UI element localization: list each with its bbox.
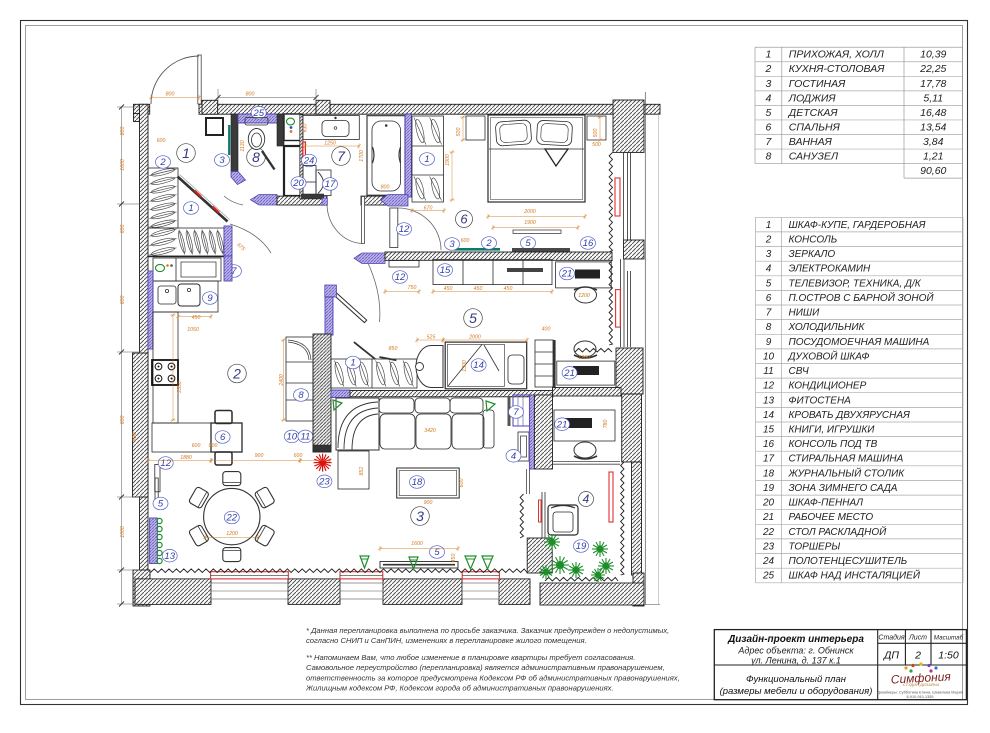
svg-text:1880: 1880 bbox=[180, 455, 192, 461]
svg-text:КОНСОЛЬ ПОД ТВ: КОНСОЛЬ ПОД ТВ bbox=[789, 439, 878, 450]
svg-text:ПРИХОЖАЯ, ХОЛЛ: ПРИХОЖАЯ, ХОЛЛ bbox=[789, 49, 885, 61]
svg-text:6: 6 bbox=[460, 211, 468, 226]
svg-text:450: 450 bbox=[444, 286, 453, 292]
svg-text:15: 15 bbox=[763, 425, 775, 436]
svg-text:800: 800 bbox=[166, 92, 175, 98]
svg-text:14: 14 bbox=[473, 360, 484, 371]
svg-text:3: 3 bbox=[219, 155, 225, 166]
svg-text:4: 4 bbox=[765, 92, 771, 104]
svg-text:800: 800 bbox=[120, 127, 126, 136]
svg-text:11: 11 bbox=[300, 432, 310, 443]
svg-text:25: 25 bbox=[762, 571, 775, 582]
svg-text:7: 7 bbox=[766, 308, 772, 319]
svg-text:1: 1 bbox=[765, 49, 771, 61]
svg-text:18: 18 bbox=[412, 477, 423, 488]
svg-text:600: 600 bbox=[157, 138, 166, 144]
svg-text:500: 500 bbox=[456, 128, 462, 137]
svg-text:ЛОДЖИЯ: ЛОДЖИЯ bbox=[788, 92, 837, 104]
svg-text:900: 900 bbox=[424, 500, 433, 506]
svg-text:10: 10 bbox=[287, 432, 298, 443]
svg-text:ПОСУДОМОЕЧНАЯ МАШИНА: ПОСУДОМОЕЧНАЯ МАШИНА bbox=[789, 337, 930, 348]
svg-text:600: 600 bbox=[132, 433, 138, 442]
svg-text:1:50: 1:50 bbox=[938, 650, 959, 662]
svg-text:САНУЗЕЛ: САНУЗЕЛ bbox=[789, 151, 839, 163]
svg-text:7: 7 bbox=[513, 407, 519, 418]
svg-text:5: 5 bbox=[766, 278, 772, 289]
svg-text:1900: 1900 bbox=[524, 220, 536, 226]
svg-text:5,11: 5,11 bbox=[923, 92, 943, 104]
svg-text:16: 16 bbox=[583, 238, 594, 249]
svg-text:800: 800 bbox=[381, 185, 390, 191]
svg-text:19: 19 bbox=[763, 483, 775, 494]
svg-text:10: 10 bbox=[763, 351, 775, 362]
svg-text:7: 7 bbox=[337, 148, 346, 164]
svg-text:Жилищным кодексом РФ, Кодексом: Жилищным кодексом РФ, Кодексом города об… bbox=[305, 684, 614, 693]
svg-text:852: 852 bbox=[359, 467, 365, 476]
svg-text:20: 20 bbox=[762, 498, 775, 509]
svg-text:8: 8 bbox=[766, 322, 772, 333]
svg-text:ответственность за которое пре: ответственность за которое предусмотрена… bbox=[306, 673, 680, 682]
svg-text:2: 2 bbox=[765, 234, 772, 245]
svg-text:5: 5 bbox=[434, 547, 440, 558]
svg-text:1600: 1600 bbox=[411, 541, 423, 547]
svg-text:6: 6 bbox=[765, 121, 771, 133]
svg-text:600: 600 bbox=[294, 453, 303, 459]
svg-text:750: 750 bbox=[408, 285, 417, 291]
svg-text:500: 500 bbox=[593, 129, 599, 138]
svg-text:Функциональный план: Функциональный план bbox=[746, 674, 847, 685]
svg-text:4: 4 bbox=[766, 264, 772, 275]
svg-text:1200: 1200 bbox=[226, 531, 238, 537]
svg-text:1050: 1050 bbox=[187, 327, 199, 333]
svg-text:15: 15 bbox=[440, 265, 451, 276]
svg-text:18: 18 bbox=[763, 468, 775, 479]
svg-text:23: 23 bbox=[318, 477, 330, 488]
svg-text:9: 9 bbox=[766, 337, 772, 348]
svg-text:ДЕТСКАЯ: ДЕТСКАЯ bbox=[788, 107, 839, 119]
svg-text:8: 8 bbox=[252, 149, 260, 165]
svg-text:6: 6 bbox=[766, 293, 772, 304]
svg-text:6: 6 bbox=[220, 432, 226, 443]
svg-text:20: 20 bbox=[292, 178, 304, 189]
svg-text:8-910-910-1355: 8-910-910-1355 bbox=[906, 695, 933, 699]
svg-text:1: 1 bbox=[766, 220, 772, 231]
svg-text:2: 2 bbox=[914, 650, 921, 662]
svg-text:17: 17 bbox=[763, 454, 775, 465]
svg-text:Масштаб: Масштаб bbox=[934, 634, 964, 642]
svg-text:ДУХОВОЙ ШКАФ: ДУХОВОЙ ШКАФ bbox=[788, 349, 870, 362]
svg-text:450: 450 bbox=[451, 554, 457, 563]
svg-text:ЭЛЕКТРОКАМИН: ЭЛЕКТРОКАМИН bbox=[789, 264, 872, 275]
svg-text:12: 12 bbox=[160, 458, 171, 469]
svg-text:21: 21 bbox=[563, 368, 575, 379]
svg-text:1300: 1300 bbox=[462, 360, 468, 372]
svg-text:630: 630 bbox=[303, 124, 309, 133]
svg-text:22: 22 bbox=[762, 527, 775, 538]
svg-text:5: 5 bbox=[469, 310, 477, 326]
svg-text:2350: 2350 bbox=[177, 381, 183, 394]
svg-text:1700: 1700 bbox=[359, 150, 365, 162]
svg-text:4: 4 bbox=[583, 492, 590, 506]
svg-text:1: 1 bbox=[182, 145, 190, 161]
svg-text:ДП: ДП bbox=[883, 650, 899, 662]
svg-text:2: 2 bbox=[232, 365, 241, 381]
svg-text:12: 12 bbox=[763, 381, 775, 392]
svg-text:согласно СНИП и СанПИН, измене: согласно СНИП и СанПИН, изменениях в пер… bbox=[306, 636, 587, 645]
svg-text:РАБОЧЕЕ МЕСТО: РАБОЧЕЕ МЕСТО bbox=[789, 512, 874, 523]
svg-text:ВАННАЯ: ВАННАЯ bbox=[789, 136, 833, 148]
svg-text:13: 13 bbox=[164, 551, 175, 562]
svg-text:2000: 2000 bbox=[468, 335, 481, 341]
svg-text:1: 1 bbox=[350, 358, 355, 369]
svg-text:Дизайнеры: Субботина Елена, Ше: Дизайнеры: Субботина Елена, Шевелева Мар… bbox=[877, 691, 963, 695]
svg-text:ЗЕРКАЛО: ЗЕРКАЛО bbox=[789, 249, 836, 260]
svg-text:1250: 1250 bbox=[324, 141, 336, 147]
svg-text:ШКАФ-КУПЕ, ГАРДЕРОБНАЯ: ШКАФ-КУПЕ, ГАРДЕРОБНАЯ bbox=[789, 220, 926, 231]
svg-text:2: 2 bbox=[159, 157, 166, 168]
svg-text:23: 23 bbox=[762, 542, 775, 553]
svg-text:ЗОНА ЗИМНЕГО САДА: ЗОНА ЗИМНЕГО САДА bbox=[789, 483, 898, 494]
svg-text:2000: 2000 bbox=[523, 209, 536, 215]
svg-text:3: 3 bbox=[449, 239, 455, 250]
svg-text:* Данная перепланировка выполн: * Данная перепланировка выполнена по про… bbox=[306, 626, 669, 635]
svg-text:** Напоминаем Вам, что любое и: ** Напоминаем Вам, что любое изменение в… bbox=[306, 653, 635, 662]
svg-text:ЖУРНАЛЬНЫЙ СТОЛИК: ЖУРНАЛЬНЫЙ СТОЛИК bbox=[788, 466, 906, 479]
svg-text:3: 3 bbox=[765, 78, 771, 90]
svg-text:Дизайн-проект интерьера: Дизайн-проект интерьера bbox=[727, 634, 864, 645]
svg-text:1200: 1200 bbox=[578, 293, 590, 299]
svg-text:450: 450 bbox=[192, 315, 201, 321]
svg-text:1200: 1200 bbox=[578, 355, 590, 361]
svg-text:ТОРШЕРЫ: ТОРШЕРЫ bbox=[789, 542, 841, 553]
svg-text:1600: 1600 bbox=[120, 159, 126, 171]
svg-text:СТУДИЯ ДИЗАЙНА: СТУДИЯ ДИЗАЙНА bbox=[903, 682, 940, 687]
svg-text:22: 22 bbox=[226, 513, 238, 524]
svg-text:16,48: 16,48 bbox=[920, 107, 946, 119]
svg-text:21: 21 bbox=[556, 419, 568, 430]
svg-text:12: 12 bbox=[395, 272, 406, 283]
svg-text:ШКАФ-ПЕННАЛ: ШКАФ-ПЕННАЛ bbox=[789, 498, 864, 509]
svg-text:22,25: 22,25 bbox=[919, 63, 946, 75]
svg-text:3: 3 bbox=[766, 249, 772, 260]
svg-text:КРОВАТЬ ДВУХЯРУСНАЯ: КРОВАТЬ ДВУХЯРУСНАЯ bbox=[789, 410, 910, 421]
svg-text:450: 450 bbox=[474, 286, 483, 292]
svg-text:ХОЛОДИЛЬНИК: ХОЛОДИЛЬНИК bbox=[788, 322, 866, 333]
svg-text:3,84: 3,84 bbox=[923, 136, 944, 148]
svg-text:1130: 1130 bbox=[240, 140, 246, 151]
svg-text:Стадия: Стадия bbox=[878, 634, 904, 642]
svg-text:13,54: 13,54 bbox=[920, 121, 946, 133]
svg-text:КНИГИ, ИГРУШКИ: КНИГИ, ИГРУШКИ bbox=[789, 425, 876, 436]
svg-text:800: 800 bbox=[246, 92, 255, 98]
svg-text:900: 900 bbox=[255, 453, 264, 459]
svg-text:СВЧ: СВЧ bbox=[789, 366, 810, 377]
svg-text:12: 12 bbox=[399, 224, 410, 235]
svg-text:780: 780 bbox=[603, 420, 609, 429]
svg-text:5: 5 bbox=[158, 499, 164, 510]
svg-text:9: 9 bbox=[207, 293, 213, 304]
svg-text:НИШИ: НИШИ bbox=[789, 308, 821, 319]
svg-text:14: 14 bbox=[763, 410, 775, 421]
svg-text:КОНСОЛЬ: КОНСОЛЬ bbox=[789, 234, 838, 245]
svg-text:21: 21 bbox=[762, 512, 774, 523]
svg-text:2400: 2400 bbox=[279, 374, 285, 387]
svg-text:8: 8 bbox=[298, 390, 304, 401]
svg-text:17: 17 bbox=[325, 179, 336, 190]
svg-text:Самовольное переустройство (пе: Самовольное переустройство (перепланиров… bbox=[306, 663, 665, 672]
svg-text:Лист: Лист bbox=[908, 635, 927, 642]
svg-text:1900: 1900 bbox=[445, 154, 451, 166]
svg-text:2: 2 bbox=[485, 238, 492, 249]
svg-text:21: 21 bbox=[561, 269, 573, 280]
svg-text:1000: 1000 bbox=[120, 526, 126, 538]
svg-text:8: 8 bbox=[765, 151, 771, 163]
svg-text:КОНДИЦИОНЕР: КОНДИЦИОНЕР bbox=[789, 381, 867, 392]
svg-text:5: 5 bbox=[765, 107, 771, 119]
svg-text:90,60: 90,60 bbox=[920, 165, 946, 177]
svg-text:П.ОСТРОВ С БАРНОЙ ЗОНОЙ: П.ОСТРОВ С БАРНОЙ ЗОНОЙ bbox=[789, 291, 935, 304]
svg-text:СПАЛЬНЯ: СПАЛЬНЯ bbox=[789, 121, 841, 133]
svg-text:(размеры мебели и оборудования: (размеры мебели и оборудования) bbox=[720, 686, 873, 697]
svg-text:17,78: 17,78 bbox=[920, 78, 946, 90]
svg-text:СТОЛ РАСКЛАДНОЙ: СТОЛ РАСКЛАДНОЙ bbox=[789, 525, 888, 538]
svg-text:800: 800 bbox=[209, 443, 218, 449]
svg-text:24: 24 bbox=[303, 156, 315, 167]
svg-text:СТИРАЛЬНАЯ МАШИНА: СТИРАЛЬНАЯ МАШИНА bbox=[789, 454, 904, 465]
svg-text:13: 13 bbox=[763, 395, 775, 406]
svg-text:ТЕЛЕВИЗОР, ТЕХНИКА, Д/К: ТЕЛЕВИЗОР, ТЕХНИКА, Д/К bbox=[789, 278, 922, 289]
svg-text:1,21: 1,21 bbox=[923, 151, 943, 163]
svg-text:600: 600 bbox=[120, 225, 126, 234]
svg-text:3420: 3420 bbox=[424, 428, 436, 434]
svg-text:2: 2 bbox=[764, 63, 771, 75]
svg-text:600: 600 bbox=[192, 443, 201, 449]
svg-text:850: 850 bbox=[389, 346, 398, 352]
svg-text:600: 600 bbox=[120, 416, 126, 425]
svg-text:Адрес объекта: г. Обнинск: Адрес объекта: г. Обнинск bbox=[737, 646, 854, 656]
svg-text:400: 400 bbox=[542, 327, 551, 333]
svg-text:11: 11 bbox=[763, 366, 773, 377]
svg-text:1: 1 bbox=[424, 154, 429, 165]
svg-text:ШКАФ НАД ИНСТАЛЯЦИЕЙ: ШКАФ НАД ИНСТАЛЯЦИЕЙ bbox=[789, 569, 921, 582]
svg-text:525: 525 bbox=[427, 335, 436, 341]
svg-text:19: 19 bbox=[576, 541, 587, 552]
svg-text:16: 16 bbox=[763, 439, 775, 450]
svg-text:600: 600 bbox=[120, 296, 126, 305]
svg-text:450: 450 bbox=[504, 286, 513, 292]
svg-text:5: 5 bbox=[525, 238, 531, 249]
svg-text:600: 600 bbox=[459, 479, 465, 488]
svg-text:ФИТОСТЕНА: ФИТОСТЕНА bbox=[789, 395, 852, 406]
svg-text:ГОСТИНАЯ: ГОСТИНАЯ bbox=[789, 78, 846, 90]
svg-text:3: 3 bbox=[416, 508, 424, 524]
svg-text:10,39: 10,39 bbox=[920, 49, 946, 61]
svg-text:4: 4 bbox=[511, 451, 516, 462]
svg-text:500: 500 bbox=[592, 142, 601, 148]
svg-text:24: 24 bbox=[762, 556, 775, 567]
svg-text:600: 600 bbox=[461, 238, 470, 244]
svg-text:1: 1 bbox=[188, 203, 193, 214]
svg-text:КУХНЯ-СТОЛОВАЯ: КУХНЯ-СТОЛОВАЯ bbox=[789, 63, 885, 75]
svg-text:ПОЛОТЕНЦЕСУШИТЕЛЬ: ПОЛОТЕНЦЕСУШИТЕЛЬ bbox=[789, 556, 908, 567]
svg-text:ул. Ленина, д. 137 к.1: ул. Ленина, д. 137 к.1 bbox=[750, 656, 841, 666]
